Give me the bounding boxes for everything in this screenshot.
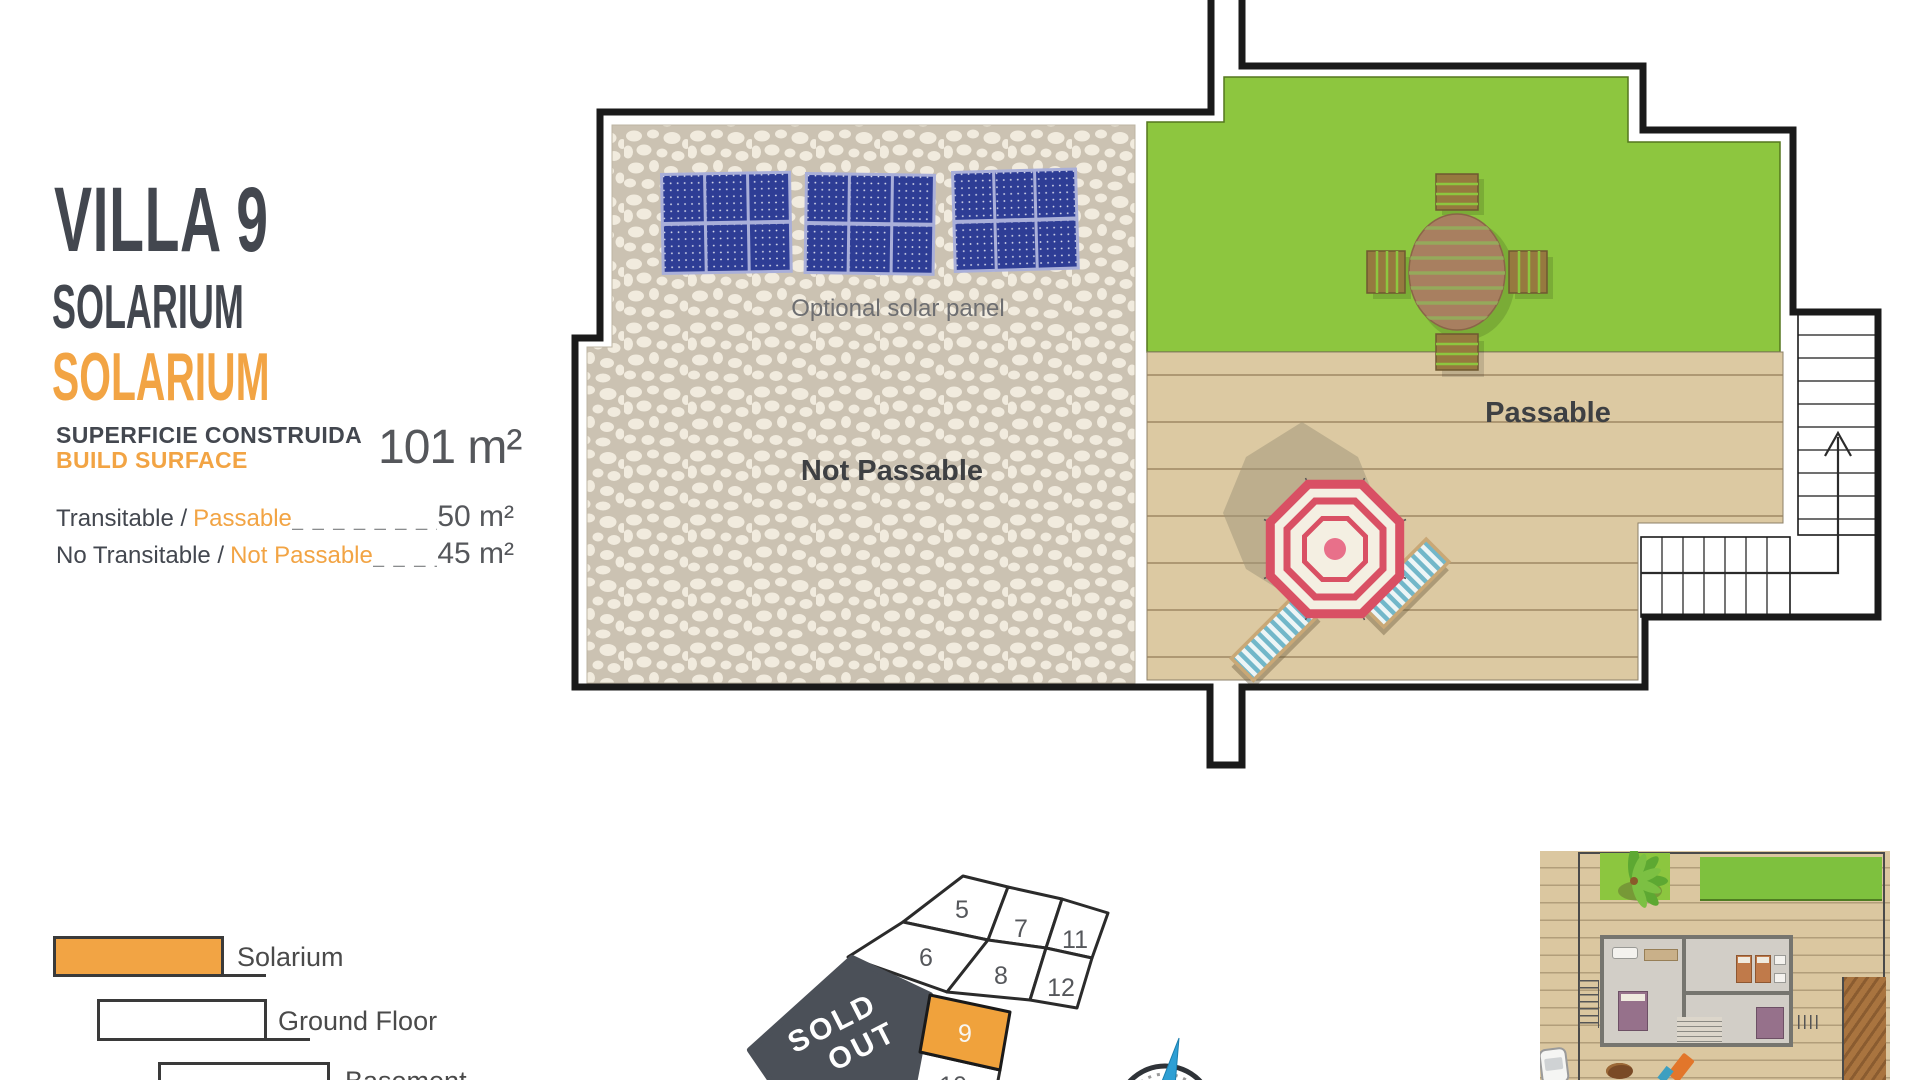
legend-swatch-basement <box>158 1062 330 1080</box>
thumbnail-railing <box>1579 980 1599 1028</box>
thumbnail-dirt-area <box>1842 977 1886 1080</box>
ground-floor-thumbnail <box>1540 851 1890 1080</box>
legend-label-basement: Basement <box>345 1066 467 1080</box>
legend-swatch-underline <box>267 1038 310 1041</box>
wardrobe <box>1644 949 1678 961</box>
row-label-en: Not Passable <box>230 542 373 570</box>
solarium-floor-plan: Optional solar panel Not Passable Passab… <box>560 0 1890 780</box>
subtitle-solarium-en: SOLARIUM <box>52 272 244 343</box>
row-label-en: Passable <box>193 505 292 533</box>
compass-icon <box>1093 1032 1243 1080</box>
measure-row-passable: Transitable / Passable _ _ _ _ _ _ _ _ _… <box>56 500 514 534</box>
thumbnail-steps <box>1798 1015 1822 1029</box>
bathroom-fixture <box>1774 955 1786 965</box>
row-value: 50 m² <box>437 500 514 534</box>
interior-wall <box>1682 991 1789 995</box>
surface-total-value: 101 m² <box>378 420 521 475</box>
plot-label-8: 8 <box>994 962 1008 990</box>
measure-row-not-passable: No Transitable / Not Passable _ _ _ _ 45… <box>56 537 514 571</box>
legend-label-solarium: Solarium <box>237 942 344 973</box>
plot-label-7: 7 <box>1014 915 1028 943</box>
bed <box>1618 991 1648 1031</box>
solar-panel-group-2 <box>804 172 936 276</box>
passable-label: Passable <box>1485 397 1611 429</box>
bed <box>1755 955 1771 983</box>
row-value: 45 m² <box>437 537 514 571</box>
solar-panel-group-1 <box>660 171 793 275</box>
row-label-es: Transitable / <box>56 505 187 533</box>
brochure-page: VILLA 9 SOLARIUM SOLARIUM SUPERFICIE CON… <box>0 0 1920 1080</box>
solar-panel-group-3 <box>951 167 1080 272</box>
solar-panel-caption: Optional solar panel <box>791 295 1004 322</box>
leader-dashes: _ _ _ _ _ _ _ _ _ <box>292 509 437 532</box>
bed <box>1736 955 1752 983</box>
legend-swatch-solarium <box>53 936 224 977</box>
plot-label-11: 11 <box>1062 926 1088 954</box>
row-label-es: No Transitable / <box>56 542 224 570</box>
legend-label-ground-floor: Ground Floor <box>278 1006 437 1037</box>
thumbnail-house-plan <box>1600 935 1793 1047</box>
leader-dashes: _ _ _ _ <box>373 546 437 569</box>
plot-label-12: 12 <box>1047 974 1075 1002</box>
plot-label-10: 10 <box>939 1072 967 1080</box>
thumbnail-plant <box>1606 1063 1633 1079</box>
plot-label-9: 9 <box>958 1020 972 1048</box>
plot-label-5: 5 <box>955 896 969 924</box>
legend-swatch-ground-floor <box>97 999 267 1041</box>
bed <box>1756 1007 1784 1039</box>
page-title: VILLA 9 <box>54 168 269 273</box>
not-passable-label: Not Passable <box>801 455 983 487</box>
subtitle-solarium-accent: SOLARIUM <box>52 338 270 416</box>
legend-swatch-underline <box>224 974 266 977</box>
car-icon <box>1540 1046 1570 1080</box>
interior-staircase <box>1677 1017 1722 1043</box>
bathroom-fixture <box>1774 973 1786 983</box>
surface-label-en: BUILD SURFACE <box>56 447 248 474</box>
thumbnail-lawn <box>1700 857 1882 901</box>
bathtub <box>1612 947 1638 959</box>
plot-label-6: 6 <box>919 944 933 972</box>
palm-tree-icon <box>1592 851 1676 923</box>
staircase-horizontal-flight <box>1641 537 1790 617</box>
compass-rose <box>1093 1032 1243 1080</box>
surface-label-es: SUPERFICIE CONSTRUIDA <box>56 422 362 449</box>
